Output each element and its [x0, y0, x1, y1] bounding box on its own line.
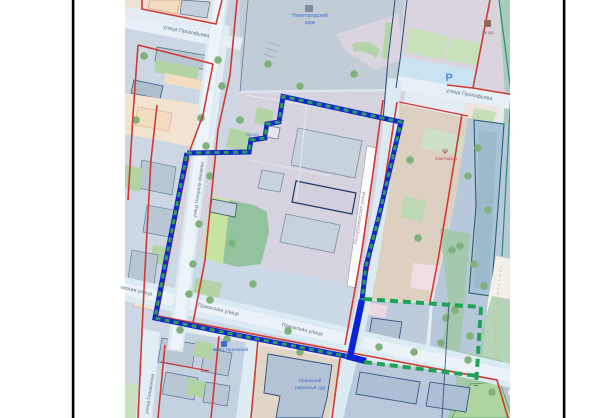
svg-text:P: P: [445, 72, 452, 84]
svg-text:цирк: цирк: [305, 20, 316, 26]
svg-text:районный суд: районный суд: [295, 384, 325, 390]
svg-text:МФЦ Приокский: МФЦ Приокский: [214, 346, 249, 352]
svg-text:Приокский: Приокский: [299, 377, 322, 383]
svg-text:гаражи: гаражи: [245, 132, 259, 137]
svg-text:Нижегородский: Нижегородский: [292, 12, 328, 19]
svg-text:метро: метро: [482, 30, 494, 35]
svg-text:Ψ: Ψ: [442, 149, 448, 156]
svg-text:Светофор: Светофор: [435, 156, 458, 162]
